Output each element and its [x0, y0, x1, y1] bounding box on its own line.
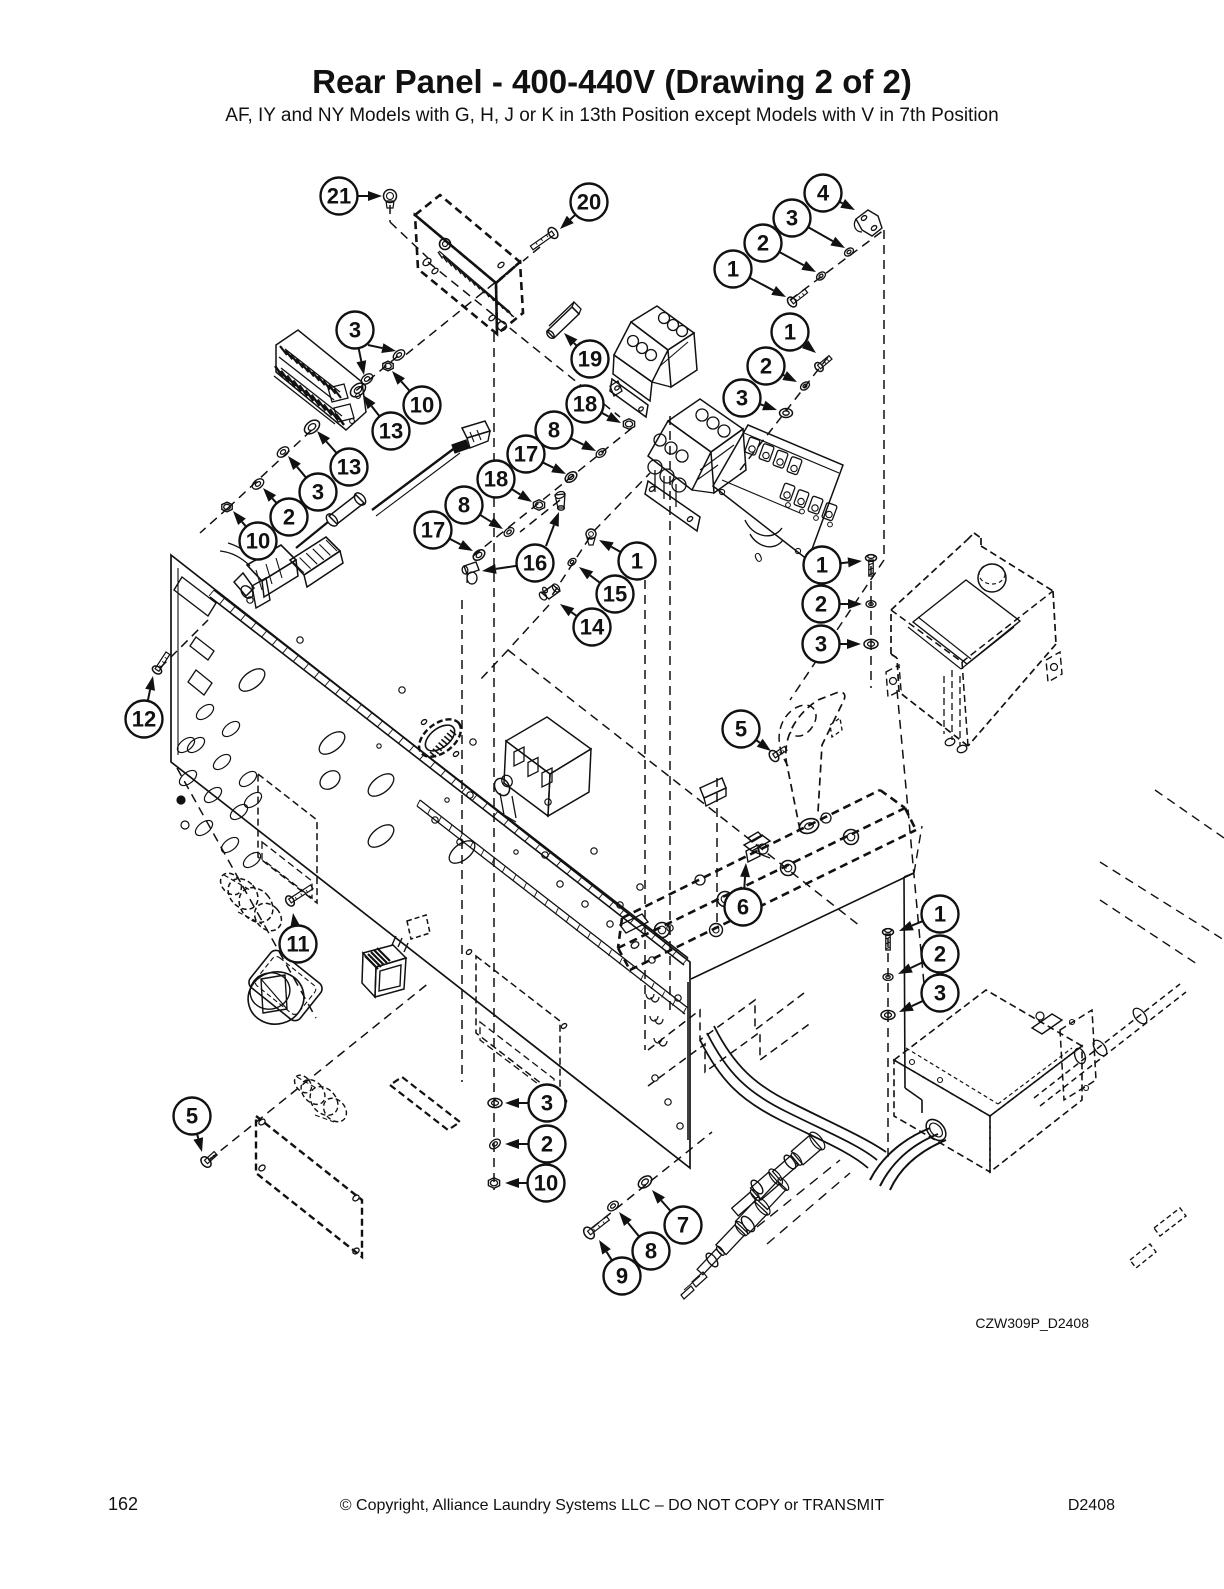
svg-text:7: 7 — [677, 1213, 689, 1238]
svg-text:2: 2 — [815, 592, 827, 617]
svg-text:2: 2 — [760, 354, 772, 379]
svg-text:18: 18 — [573, 392, 597, 417]
svg-text:3: 3 — [786, 206, 798, 231]
svg-text:8: 8 — [645, 1239, 657, 1264]
svg-text:3: 3 — [312, 480, 324, 505]
svg-text:3: 3 — [349, 318, 361, 343]
svg-text:11: 11 — [286, 932, 309, 957]
svg-text:6: 6 — [737, 895, 749, 920]
svg-text:13: 13 — [337, 455, 361, 480]
svg-text:1: 1 — [934, 902, 946, 927]
svg-text:2: 2 — [934, 942, 946, 967]
svg-text:2: 2 — [757, 231, 769, 256]
svg-text:2: 2 — [283, 505, 295, 530]
svg-text:8: 8 — [458, 493, 470, 518]
svg-text:3: 3 — [736, 386, 748, 411]
svg-text:10: 10 — [246, 529, 270, 554]
svg-text:1: 1 — [784, 320, 796, 345]
svg-text:© Copyright, Alliance Laundry: © Copyright, Alliance Laundry Systems LL… — [340, 1497, 885, 1514]
svg-text:17: 17 — [514, 442, 538, 467]
svg-text:CZW309P_D2408: CZW309P_D2408 — [975, 1315, 1089, 1331]
svg-text:18: 18 — [484, 467, 508, 492]
svg-text:19: 19 — [578, 347, 602, 372]
svg-text:10: 10 — [534, 1171, 558, 1196]
svg-text:13: 13 — [379, 419, 403, 444]
svg-text:5: 5 — [186, 1104, 198, 1129]
svg-text:15: 15 — [603, 582, 627, 607]
svg-text:1: 1 — [816, 553, 828, 578]
svg-text:3: 3 — [541, 1091, 553, 1116]
svg-text:9: 9 — [616, 1264, 628, 1289]
svg-text:D2408: D2408 — [1068, 1497, 1115, 1514]
svg-text:162: 162 — [108, 1494, 138, 1514]
svg-text:12: 12 — [132, 707, 156, 732]
svg-text:2: 2 — [541, 1132, 553, 1157]
svg-text:1: 1 — [631, 549, 643, 574]
svg-text:16: 16 — [523, 551, 547, 576]
svg-text:8: 8 — [548, 418, 560, 443]
svg-text:Rear Panel - 400-440V (Drawing: Rear Panel - 400-440V (Drawing 2 of 2) — [312, 63, 912, 100]
svg-text:5: 5 — [735, 717, 747, 742]
svg-text:AF, IY and NY Models with G, H: AF, IY and NY Models with G, H, J or K i… — [225, 105, 998, 126]
svg-text:17: 17 — [421, 518, 445, 543]
svg-text:20: 20 — [577, 190, 601, 215]
svg-text:3: 3 — [934, 981, 946, 1006]
svg-text:4: 4 — [817, 181, 830, 206]
svg-text:21: 21 — [327, 184, 351, 209]
svg-text:3: 3 — [815, 632, 827, 657]
svg-text:10: 10 — [410, 393, 434, 418]
svg-text:1: 1 — [727, 257, 739, 282]
svg-text:14: 14 — [580, 615, 605, 640]
